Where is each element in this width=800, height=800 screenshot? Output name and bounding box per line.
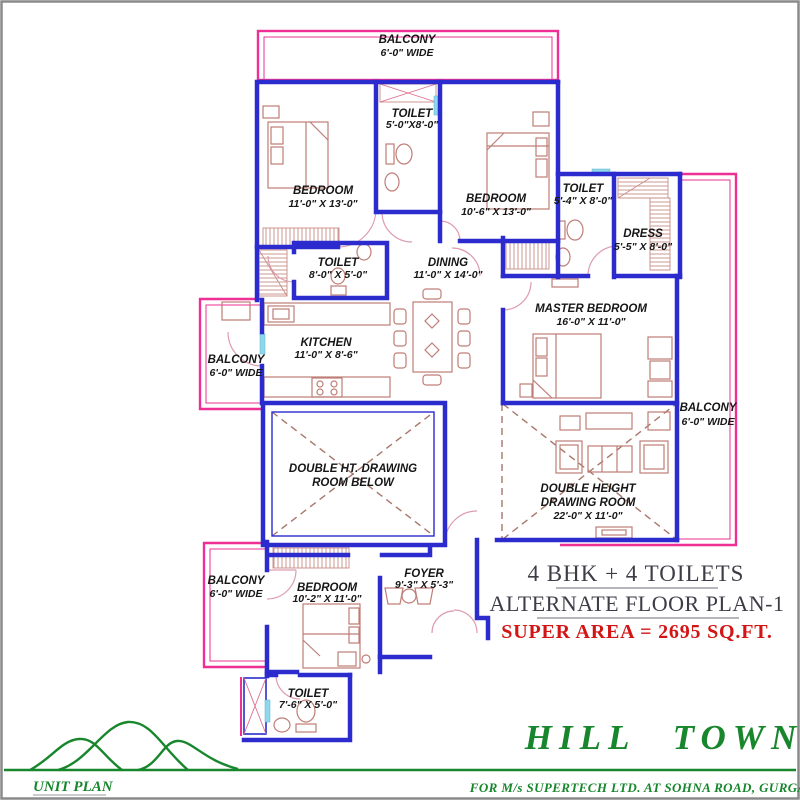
label-bedroom-1-dims: 11'-0" X 13'-0" (288, 198, 358, 210)
label-dhdr-line2: DRAWING ROOM (541, 497, 636, 509)
label-dhdr-dims: 22'-0" X 11'-0" (552, 510, 623, 522)
label-balcony-bottom-dims: 6'-0" WIDE (210, 588, 264, 600)
label-toilet-top-dims: 5'-0"X8'-0" (386, 119, 439, 131)
label-master-bedroom-dims: 16'-0" X 11'-0" (556, 316, 626, 328)
label-toilet-right-dims: 5'-4" X 8'-0" (554, 195, 613, 207)
label-drawing-room-below-line2: ROOM BELOW (312, 477, 395, 489)
summary-super-area: SUPER AREA = 2695 SQ.FT. (501, 621, 772, 643)
summary-plan: ALTERNATE FLOOR PLAN-1 (490, 591, 785, 616)
label-balcony-top-name: BALCONY (379, 34, 437, 46)
sheet-name: UNIT PLAN (33, 779, 114, 795)
summary-block: 4 BHK + 4 TOILETS ALTERNATE FLOOR PLAN-1… (490, 561, 785, 643)
floor-plan-canvas: BALCONY 6'-0" WIDE BEDROOM 11'-0" X 13'-… (0, 0, 800, 800)
label-kitchen-name: KITCHEN (300, 337, 352, 349)
label-kitchen-dims: 11'-0" X 8'-6" (294, 349, 358, 361)
label-bedroom-3-dims: 10'-2" X 11'-0" (292, 593, 362, 605)
label-dining-name: DINING (428, 257, 468, 269)
label-dhdr-line1: DOUBLE HEIGHT (540, 483, 636, 495)
label-drawing-room-below-line1: DOUBLE HT. DRAWING (289, 463, 417, 475)
label-bedroom-1-name: BEDROOM (293, 185, 353, 197)
label-balcony-bottom-name: BALCONY (208, 575, 266, 587)
client-line: FOR M/s SUPERTECH LTD. AT SOHNA ROAD, GU… (469, 780, 800, 795)
label-master-bedroom-name: MASTER BEDROOM (535, 303, 647, 315)
label-balcony-right-dims: 6'-0" WIDE (682, 416, 736, 428)
label-toilet-right-name: TOILET (563, 183, 605, 195)
label-foyer-dims: 9'-3" X 5'-3" (395, 579, 454, 591)
label-balcony-left-dims: 6'-0" WIDE (210, 367, 264, 379)
label-balcony-right-name: BALCONY (680, 402, 738, 414)
summary-bhk: 4 BHK + 4 TOILETS (528, 561, 745, 586)
label-toilet-mid-dims: 8'-0" X 5'-0" (309, 269, 368, 281)
label-balcony-top-dims: 6'-0" WIDE (381, 47, 435, 59)
label-dining-dims: 11'-0" X 14'-0" (413, 269, 483, 281)
label-toilet-bottom-dims: 7'-6" X 5'-0" (279, 699, 338, 711)
project-title: HILL TOWN (524, 718, 800, 757)
label-balcony-left-name: BALCONY (208, 354, 266, 366)
label-bedroom-2-name: BEDROOM (466, 193, 526, 205)
label-dress-dims: 5'-5" X 8'-0" (614, 241, 673, 253)
label-dress-name: DRESS (623, 228, 663, 240)
label-toilet-mid-name: TOILET (318, 257, 360, 269)
label-bedroom-2-dims: 10'-6" X 13'-0" (461, 206, 532, 218)
